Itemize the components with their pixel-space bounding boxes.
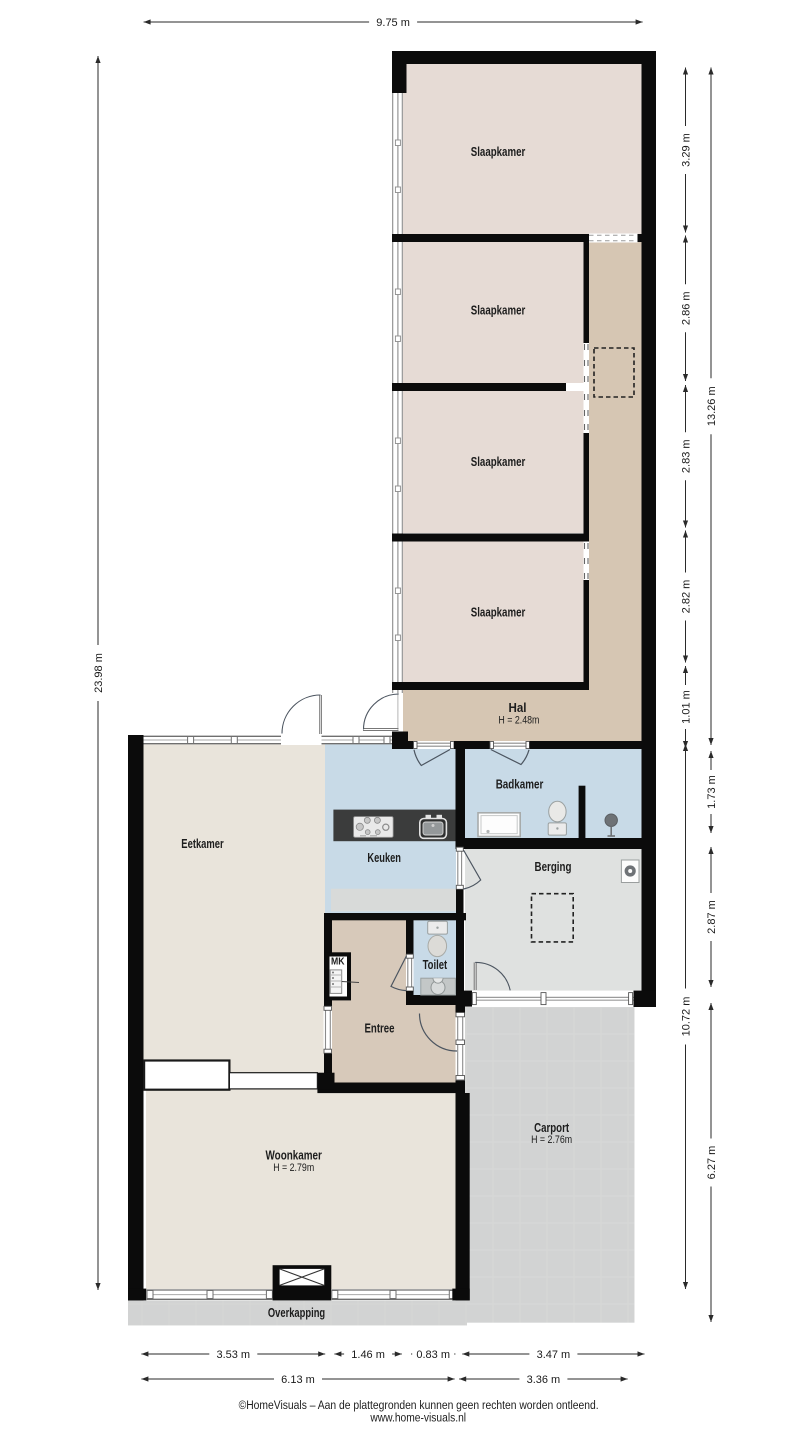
svg-text:www.home-visuals.nl: www.home-visuals.nl (370, 1411, 467, 1425)
svg-text:6.27 m: 6.27 m (706, 1146, 718, 1180)
svg-text:H = 2.48m: H = 2.48m (498, 715, 539, 727)
svg-text:13.26 m: 13.26 m (706, 386, 718, 426)
svg-text:6.13 m: 6.13 m (281, 1374, 315, 1386)
svg-text:Toilet: Toilet (423, 958, 448, 972)
svg-text:1.73 m: 1.73 m (706, 775, 718, 809)
svg-text:10.72 m: 10.72 m (681, 997, 693, 1037)
svg-text:Eetkamer: Eetkamer (181, 837, 223, 851)
svg-text:2.86 m: 2.86 m (681, 291, 693, 325)
svg-text:3.47 m: 3.47 m (537, 1349, 571, 1361)
svg-text:0.83 m: 0.83 m (416, 1349, 450, 1361)
svg-text:2.87 m: 2.87 m (706, 900, 718, 934)
svg-text:Slaapkamer: Slaapkamer (471, 304, 526, 318)
svg-text:1.01 m: 1.01 m (681, 690, 693, 724)
svg-text:Keuken: Keuken (367, 851, 401, 865)
svg-text:9.75 m: 9.75 m (376, 17, 410, 29)
svg-text:1.46 m: 1.46 m (351, 1349, 385, 1361)
svg-text:Hal: Hal (509, 701, 527, 715)
svg-text:Slaapkamer: Slaapkamer (471, 455, 526, 469)
svg-text:3.53 m: 3.53 m (216, 1349, 250, 1361)
svg-text:MK: MK (331, 956, 345, 968)
svg-text:Woonkamer: Woonkamer (266, 1149, 322, 1163)
svg-text:Berging: Berging (535, 860, 572, 874)
svg-text:Slaapkamer: Slaapkamer (471, 606, 526, 620)
svg-text:H = 2.79m: H = 2.79m (273, 1162, 314, 1174)
svg-text:Entree: Entree (365, 1022, 395, 1036)
svg-text:H = 2.76m: H = 2.76m (531, 1134, 572, 1146)
svg-text:2.83 m: 2.83 m (681, 439, 693, 473)
svg-text:23.98 m: 23.98 m (93, 653, 105, 693)
svg-text:2.82 m: 2.82 m (681, 580, 693, 614)
svg-text:Overkapping: Overkapping (268, 1306, 325, 1320)
svg-text:Slaapkamer: Slaapkamer (471, 145, 526, 159)
svg-text:Carport: Carport (534, 1121, 570, 1135)
svg-text:Badkamer: Badkamer (496, 777, 544, 791)
svg-text:3.29 m: 3.29 m (681, 133, 693, 167)
svg-text:3.36 m: 3.36 m (527, 1374, 561, 1386)
